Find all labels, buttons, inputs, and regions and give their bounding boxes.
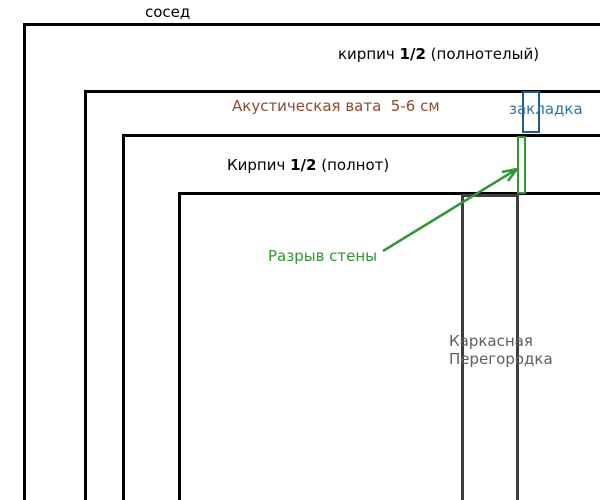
outer-brick-label-fraction: 1/2	[400, 45, 426, 63]
outer-brick-label: кирпич 1/2 (полнотелый)	[338, 45, 539, 63]
outer-brick-label-prefix: кирпич	[338, 45, 400, 63]
acoustic-wool-label: Акустическая вата 5-6 см	[232, 97, 440, 115]
wall-break-label: Разрыв стены	[268, 247, 377, 265]
frame-partition-label: КаркаснаяПерегородка	[449, 332, 553, 368]
wall-insulation-diagram: сосед кирпич 1/2 (полнотелый) Акустическ…	[0, 0, 600, 500]
inner-brick-label-prefix: Кирпич	[227, 156, 290, 174]
inner-brick-label: Кирпич 1/2 (полнот)	[227, 156, 389, 174]
outer-brick-label-suffix: (полнотелый)	[426, 45, 539, 63]
inner-brick-label-suffix: (полнот)	[316, 156, 389, 174]
wall-break-rect	[517, 136, 526, 194]
inner-brick-label-fraction: 1/2	[290, 156, 316, 174]
neighbor-label: сосед	[145, 3, 190, 21]
frame-partition-label-line1: Каркасная	[449, 332, 553, 350]
embed-label: закладка	[509, 100, 583, 118]
frame-partition-label-line2: Перегородка	[449, 350, 553, 368]
